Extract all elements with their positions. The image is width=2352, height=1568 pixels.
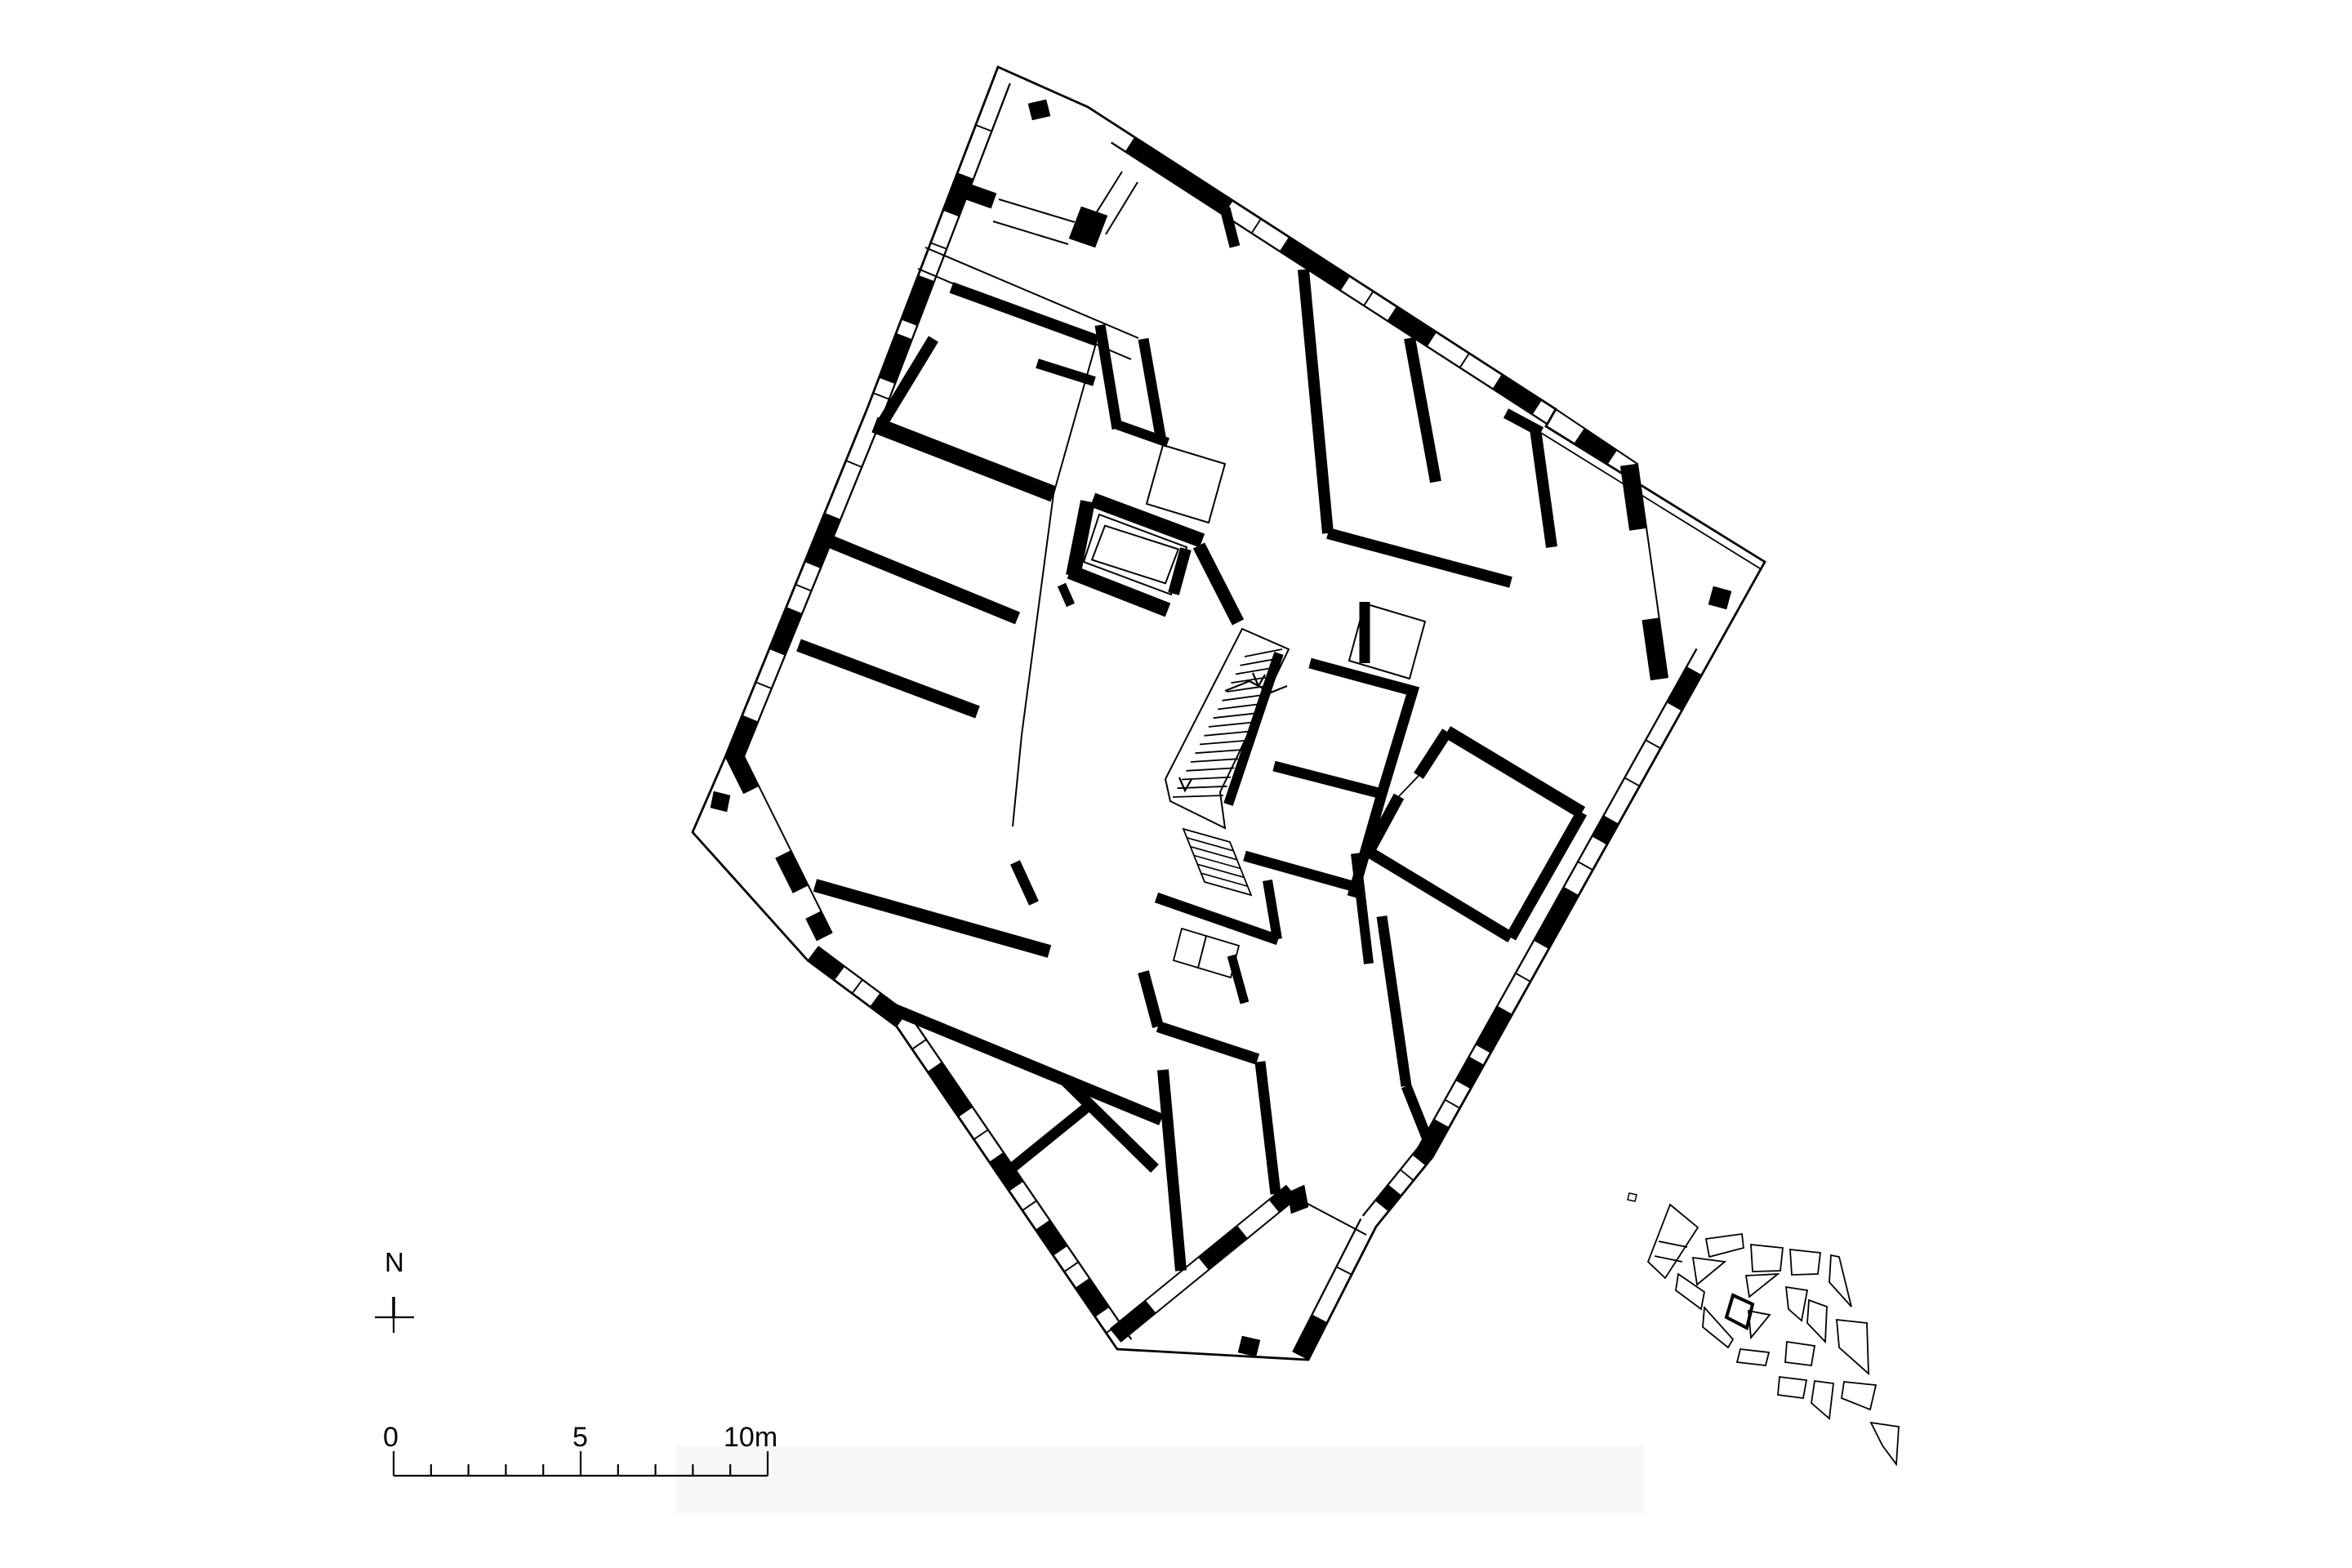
svg-text:N: N bbox=[385, 1247, 404, 1277]
svg-text:0: 0 bbox=[383, 1422, 399, 1453]
svg-text:5: 5 bbox=[572, 1422, 588, 1453]
svg-text:10m: 10m bbox=[724, 1422, 777, 1453]
